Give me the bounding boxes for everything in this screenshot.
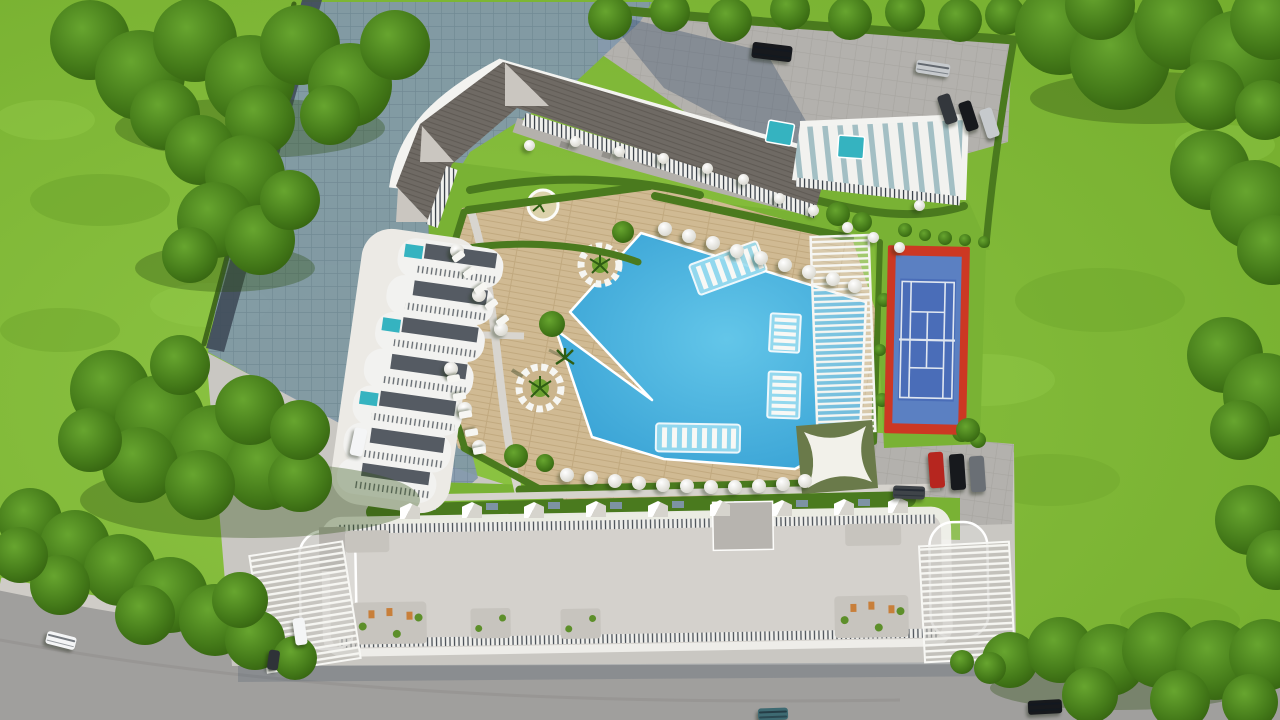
deck-bush	[504, 444, 528, 468]
umbrella-icon	[868, 232, 879, 243]
umbrella-icon	[632, 476, 646, 490]
in-pool-lounger-shelf	[767, 371, 801, 418]
umbrella-icon	[752, 479, 766, 493]
deck-bush	[539, 311, 565, 337]
car-gray	[969, 456, 986, 493]
umbrella-icon	[894, 242, 905, 253]
umbrella-icon	[682, 229, 696, 243]
car-red	[928, 452, 945, 489]
umbrella-icon	[774, 193, 785, 204]
pergola	[811, 235, 876, 433]
umbrella-icon	[584, 471, 598, 485]
umbrella-icon	[914, 200, 925, 211]
umbrella-icon	[730, 244, 744, 258]
umbrella-icon	[848, 279, 862, 293]
rooftop-pool	[837, 135, 864, 159]
umbrella-icon	[776, 477, 790, 491]
in-pool-lounger-shelf	[769, 313, 801, 353]
car-dark-road	[1028, 699, 1063, 715]
in-pool-lounger-shelf	[656, 423, 740, 452]
car-black	[949, 454, 966, 491]
umbrella-icon	[798, 474, 812, 488]
umbrella-icon	[614, 146, 625, 157]
south-building	[299, 498, 989, 658]
umbrella-icon	[754, 251, 768, 265]
umbrella-icon	[658, 222, 672, 236]
umbrella-icon	[680, 479, 694, 493]
umbrella-icon	[706, 236, 720, 250]
deck-bush	[612, 221, 634, 243]
umbrella-icon	[778, 258, 792, 272]
umbrella-icon	[570, 136, 581, 147]
umbrella-icon	[704, 480, 718, 494]
umbrella-icon	[658, 153, 669, 164]
umbrella-icon	[842, 222, 853, 233]
deck-bush	[536, 454, 554, 472]
umbrella-icon	[728, 480, 742, 494]
umbrella-icon	[656, 478, 670, 492]
umbrella-icon	[560, 468, 574, 482]
aerial-site-plan	[0, 0, 1280, 720]
umbrella-icon	[608, 474, 622, 488]
umbrella-icon	[808, 205, 819, 216]
umbrella-icon	[826, 272, 840, 286]
terrain-layer	[0, 0, 1280, 720]
umbrella-icon	[702, 163, 713, 174]
tennis-court	[884, 245, 970, 435]
car-dark-horizontal	[893, 485, 925, 499]
rooftop-pool	[765, 120, 794, 146]
umbrella-icon	[802, 265, 816, 279]
umbrella-icon	[524, 140, 535, 151]
car-teal-road	[758, 707, 788, 720]
umbrella-icon	[738, 174, 749, 185]
